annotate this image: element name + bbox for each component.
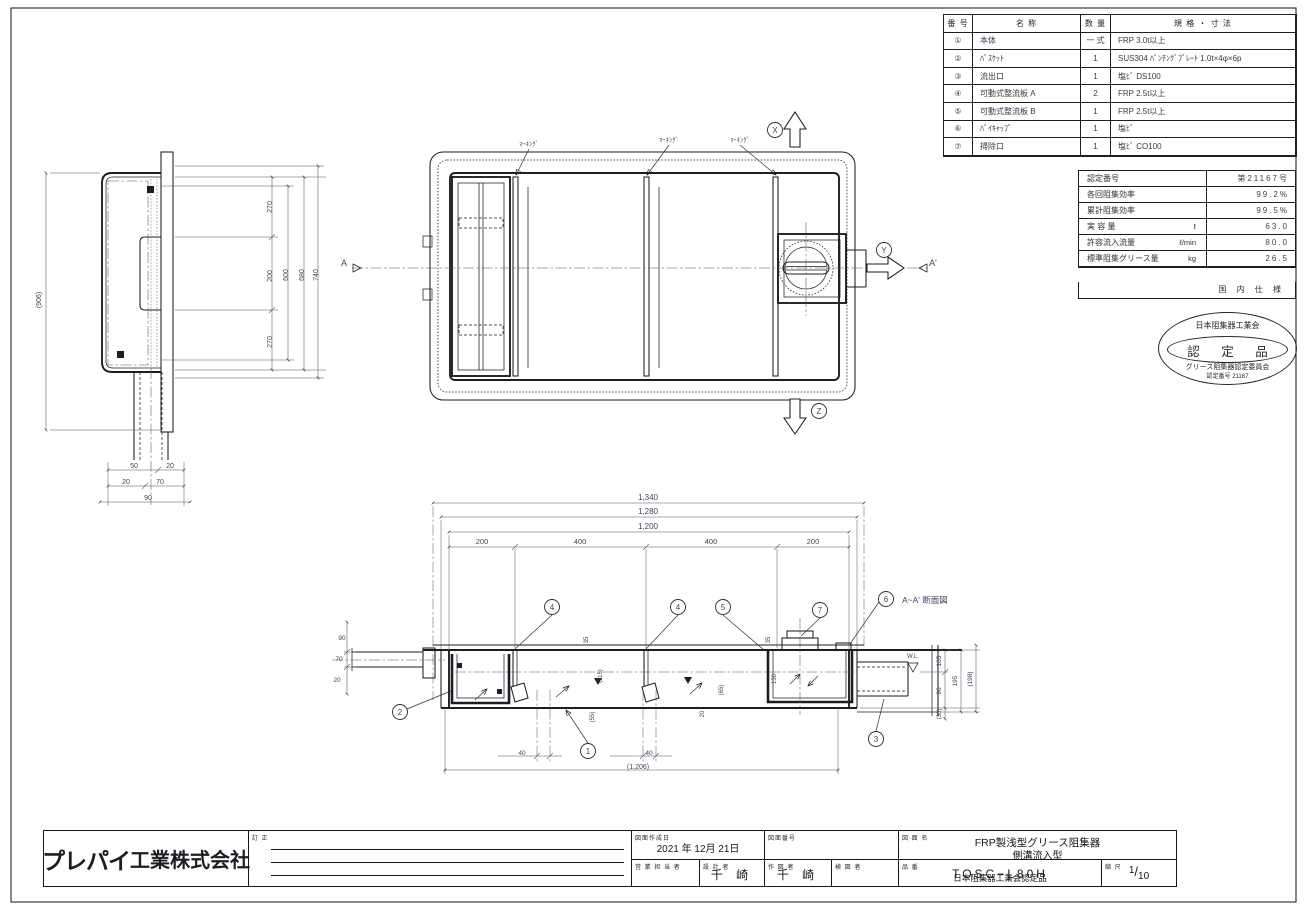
drawing-sheet: ﾏｰｷﾝｸﾞﾏｰｷﾝｸﾞﾏｰｷﾝｸﾞXYZAA'(906)27020027060… — [0, 0, 1307, 912]
part-spec: FRP 2.5t以上 — [1111, 103, 1296, 121]
sec-dim-35a: 35 — [584, 636, 590, 643]
part-qty: 1 — [1081, 50, 1111, 68]
side-dim-overall: (906) — [36, 292, 43, 308]
sec-dim-90l: 90 — [338, 635, 346, 642]
part-qty: 1 — [1081, 138, 1111, 156]
spec-value: 63.0 — [1207, 219, 1295, 235]
side-dim-70: 70 — [156, 479, 164, 486]
side-dim-270a: 270 — [267, 201, 274, 213]
part-qty: 1 — [1081, 121, 1111, 139]
revision-line — [271, 849, 624, 850]
side-dim-270b: 270 — [267, 336, 274, 348]
parts-header-spec: 規 格 ・ 寸 法 — [1111, 15, 1296, 33]
sec-dim-1206: (1,206) — [627, 764, 649, 771]
stamp-org: 日本阻集器工業会 — [1159, 320, 1296, 331]
date-cell: 図面作成日 2021 年 12月 21日 — [631, 831, 764, 859]
parts-table: 番 号 名 称 数 量 規 格 ・ 寸 法 ① 本体 一 式 FRP 3.0t以… — [943, 14, 1297, 157]
side-dim-200: 200 — [267, 270, 274, 282]
company-box: プレパイ工業株式会社 — [44, 831, 248, 886]
spec-value: 第21167号 — [1207, 171, 1295, 187]
checker-cell: 検 図 者 — [831, 859, 898, 886]
side-dim-600: 600 — [283, 269, 290, 281]
sec-dim-1340: 1,340 — [638, 493, 659, 502]
certification-stamp: 日本阻集器工業会 認 定 品 グリース阻集器認定委員会 認定番号 21167 — [1158, 312, 1297, 385]
spec-table-footer: 国 内 仕 様 — [1078, 282, 1296, 299]
sec-dim-90r: 90 — [936, 687, 943, 695]
section-mark-a: A — [341, 258, 347, 268]
spec-unit: kg — [1188, 254, 1206, 263]
part-no: ③ — [944, 68, 973, 86]
revision-box: 訂 正 — [248, 831, 632, 886]
water-level-label: W.L. — [907, 654, 919, 660]
sec-dim-195: 195 — [952, 675, 959, 686]
date-value: 2021 年 12月 21日 — [632, 840, 764, 855]
spec-value: 99.5% — [1207, 203, 1295, 219]
drawing-no-label: 図面番号 — [768, 833, 796, 842]
sec-dim-105: 105 — [936, 655, 943, 666]
sec-dim-70l: 70 — [335, 656, 343, 663]
side-dim-680: 680 — [299, 269, 306, 281]
sec-dim-30: (30) — [937, 709, 943, 720]
spec-value: 80.0 — [1207, 235, 1295, 251]
sales-cell: 営 業 担 当 者 — [631, 859, 699, 886]
spec-unit: ℓ/min — [1179, 238, 1206, 247]
part-qty: 1 — [1081, 68, 1111, 86]
part-spec: 塩ﾋﾞ — [1111, 121, 1296, 139]
sec-dim-200a: 200 — [476, 537, 489, 546]
part-no: ① — [944, 33, 973, 51]
stamp-number: 認定番号 21167 — [1159, 371, 1296, 380]
sec-dim-55: (55) — [590, 712, 596, 723]
sec-dim-1200: 1,200 — [638, 522, 659, 531]
part-name: 流出口 — [973, 68, 1081, 86]
sec-dim-35b: 35 — [766, 636, 772, 643]
scale-cell: 縮 尺 1/10 — [1101, 859, 1176, 886]
parts-header-name: 名 称 — [973, 15, 1081, 33]
sec-dim-20l: 20 — [333, 677, 341, 684]
drawing-name-cell: 図 面 名 FRP製浅型グリース阻集器 側溝流入型 — [898, 831, 1176, 859]
sec-dim-400a: 400 — [574, 537, 587, 546]
axis-z-arrow-icon — [784, 399, 806, 434]
drafter-name: 千 崎 — [765, 866, 831, 883]
domestic-spec-note: 国 内 仕 様 — [1079, 282, 1295, 297]
part-no: ⑦ — [944, 138, 973, 156]
part-spec: 塩ﾋﾞ DS100 — [1111, 68, 1296, 86]
sec-dim-115: (115) — [598, 669, 604, 683]
balloon-6: 6 — [884, 595, 889, 604]
balloon-7: 7 — [818, 606, 823, 615]
axis-y-balloon: Y — [881, 246, 887, 255]
part-no: ⑤ — [944, 103, 973, 121]
spec-value: 26.5 — [1207, 251, 1295, 267]
scale-value: 1/10 — [1102, 864, 1176, 879]
designer-name: 千 崎 — [700, 866, 764, 883]
marking-label-2: ﾏｰｷﾝｸﾞ — [659, 136, 679, 144]
sec-dim-150: 150 — [772, 673, 778, 684]
sec-dim-400b: 400 — [705, 537, 718, 546]
part-spec: 塩ﾋﾞ CO100 — [1111, 138, 1296, 156]
sec-dim-200b: 200 — [807, 537, 820, 546]
scale-numerator: 1 — [1129, 865, 1135, 876]
revision-line — [271, 875, 624, 876]
plan-view — [352, 112, 928, 434]
part-no: ⑥ — [944, 121, 973, 139]
side-dim-20b: 20 — [122, 479, 130, 486]
axis-x-balloon: X — [772, 126, 778, 135]
part-name: 本体 — [973, 33, 1081, 51]
spec-label: 許容流入流量ℓ/min — [1079, 235, 1207, 251]
sec-dim-40b: 40 — [645, 750, 653, 757]
stamp-title: 認 定 品 — [1159, 341, 1296, 360]
section-title: A~A' 断面図 — [902, 595, 948, 605]
side-dim-90: 90 — [144, 495, 152, 502]
balloon-5: 5 — [721, 603, 726, 612]
sec-dim-40a: 40 — [518, 750, 526, 757]
drafter-cell: 作 図 者 千 崎 — [764, 859, 831, 886]
section-view — [332, 503, 980, 774]
title-block: プレパイ工業株式会社 訂 正 図面作成日 2021 年 12月 21日 図面番号… — [43, 830, 1177, 887]
scale-denominator: 10 — [1138, 871, 1149, 882]
sec-dim-20m: 20 — [700, 710, 706, 717]
balloon-4a: 4 — [550, 603, 555, 612]
spec-unit: ℓ — [1194, 222, 1206, 231]
spec-label: 累計阻集効率 — [1079, 203, 1207, 219]
side-dim-20a: 20 — [166, 463, 174, 470]
section-mark-a-prime: A' — [929, 258, 937, 268]
product-note: 日本阻集器工業会認定品 — [899, 872, 1101, 884]
sales-label: 営 業 担 当 者 — [635, 862, 681, 871]
revision-label: 訂 正 — [252, 833, 269, 842]
part-name: ﾊﾞｽｹｯﾄ — [973, 50, 1081, 68]
sec-dim-65: (65) — [719, 685, 725, 696]
part-name: 可動式整流板 B — [973, 103, 1081, 121]
part-name: 掃除口 — [973, 138, 1081, 156]
marking-label-1: ﾏｰｷﾝｸﾞ — [519, 140, 539, 148]
part-qty: 1 — [1081, 103, 1111, 121]
revision-line — [271, 862, 624, 863]
spec-table: 認定番号 第21167号 各回阻集効率 99.2% 累計阻集効率 99.5% 実… — [1078, 170, 1296, 268]
balloon-3: 3 — [874, 735, 879, 744]
balloon-1: 1 — [586, 747, 591, 756]
spec-label: 各回阻集効率 — [1079, 187, 1207, 203]
company-logo: プレパイ — [42, 842, 130, 876]
checker-label: 検 図 者 — [835, 862, 861, 871]
part-qty: 一 式 — [1081, 33, 1111, 51]
part-spec: FRP 2.5t以上 — [1111, 85, 1296, 103]
spec-label: 認定番号 — [1079, 171, 1207, 187]
parts-header-no: 番 号 — [944, 15, 973, 33]
part-spec: FRP 3.0t以上 — [1111, 33, 1296, 51]
spec-label: 標準阻集グリース量kg — [1079, 251, 1207, 267]
sec-dim-198: (198) — [967, 671, 974, 686]
part-no: ② — [944, 50, 973, 68]
side-dim-50: 50 — [130, 463, 138, 470]
axis-y-arrow-icon — [867, 257, 904, 279]
part-spec: SUS304 ﾊﾟﾝﾁﾝｸﾞﾌﾟﾚｰﾄ 1.0t×4φ×6p — [1111, 50, 1296, 68]
part-no: ④ — [944, 85, 973, 103]
spec-value: 99.2% — [1207, 187, 1295, 203]
balloon-2: 2 — [398, 708, 403, 717]
product-no-cell: 品 番 TOSC−L80H 日本阻集器工業会認定品 — [898, 859, 1101, 886]
spec-label: 実 容 量ℓ — [1079, 219, 1207, 235]
sec-dim-1280: 1,280 — [638, 507, 659, 516]
marking-label-3: ﾏｰｷﾝｸﾞ — [730, 136, 750, 144]
company-name: 工業株式会社 — [130, 844, 250, 873]
part-qty: 2 — [1081, 85, 1111, 103]
balloon-4b: 4 — [676, 603, 681, 612]
designer-cell: 設 計 者 千 崎 — [699, 859, 764, 886]
parts-header-qty: 数 量 — [1081, 15, 1111, 33]
side-view — [46, 152, 326, 506]
part-name: 可動式整流板 A — [973, 85, 1081, 103]
side-dim-740: 740 — [313, 269, 320, 281]
axis-x-arrow-icon — [784, 112, 806, 147]
drawing-no-cell: 図面番号 — [764, 831, 898, 859]
axis-z-balloon: Z — [817, 407, 822, 416]
part-name: ﾊﾟｲｷｬｯﾌﾟ — [973, 121, 1081, 139]
